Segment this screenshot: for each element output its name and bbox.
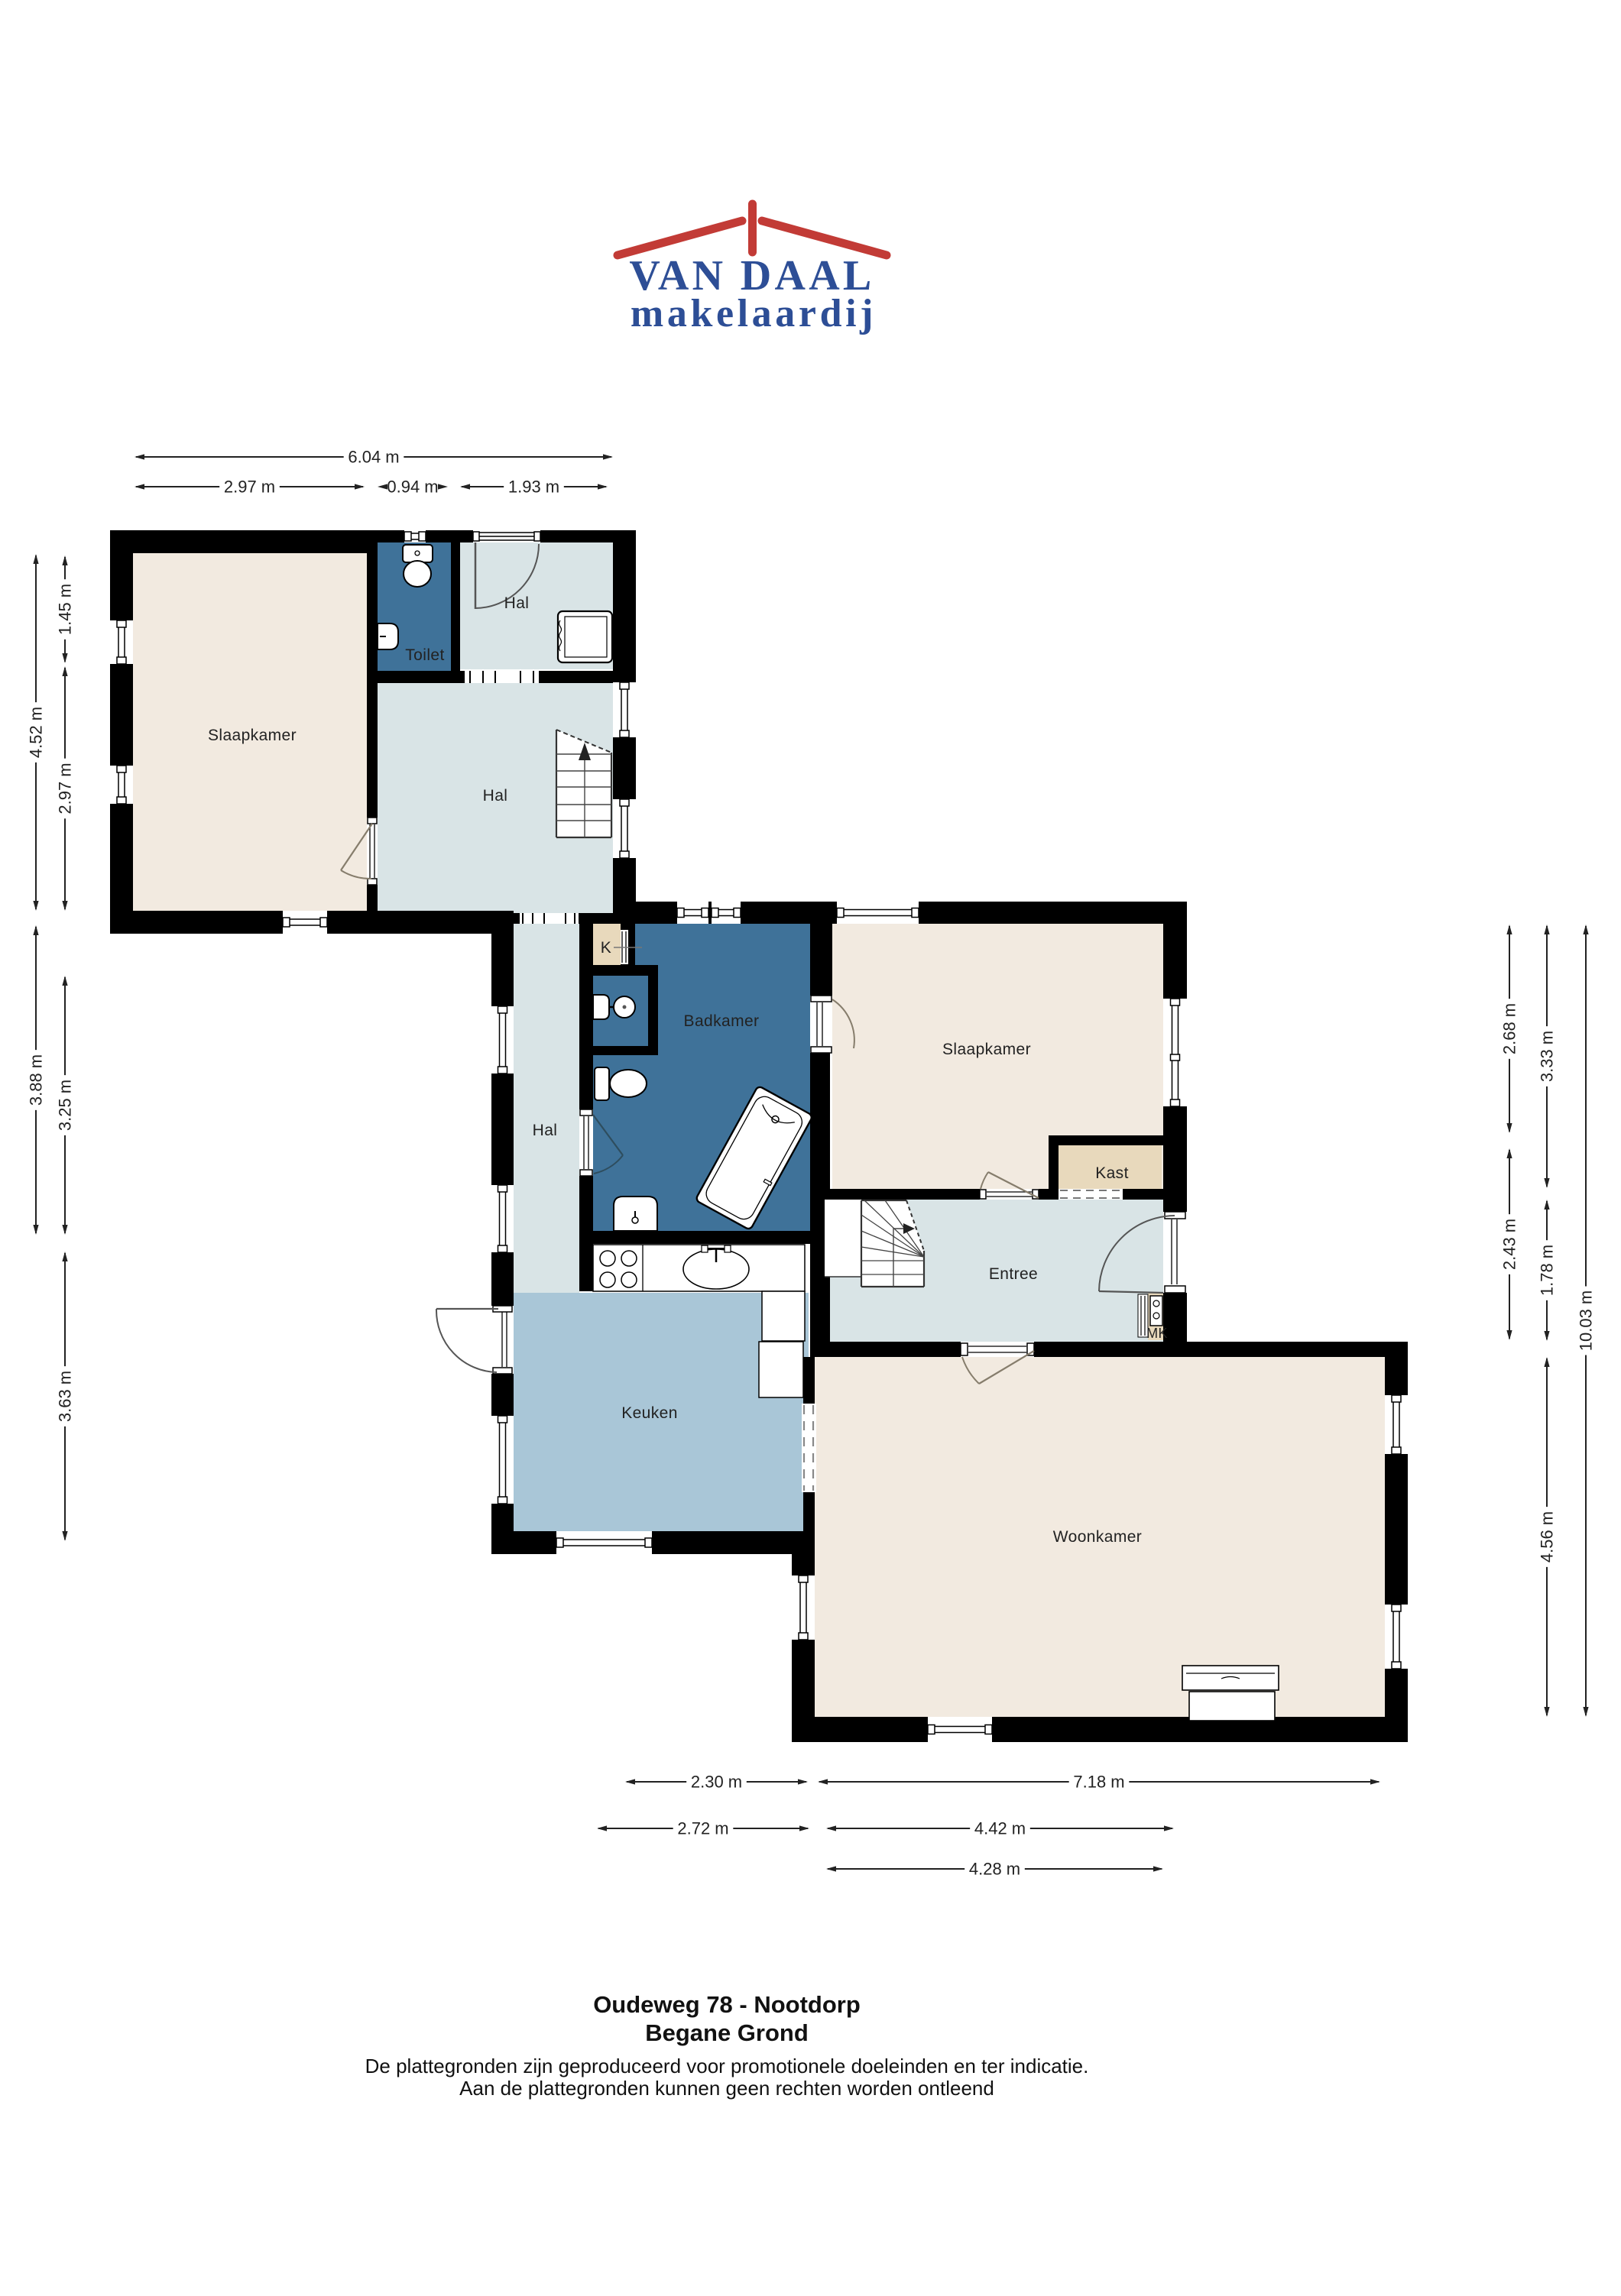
svg-text:MK: MK [1146,1326,1168,1341]
svg-text:1.45 m: 1.45 m [55,584,74,635]
svg-text:1.78 m: 1.78 m [1537,1245,1556,1296]
svg-text:0.94 m: 0.94 m [387,477,438,496]
svg-text:Slaapkamer: Slaapkamer [208,727,297,744]
svg-text:2.72 m: 2.72 m [677,1818,728,1838]
svg-text:10.03 m: 10.03 m [1576,1290,1595,1352]
svg-text:7.18 m: 7.18 m [1073,1772,1124,1791]
svg-text:3.25 m: 3.25 m [55,1080,74,1131]
svg-text:Aan de plattegronden kunnen ge: Aan de plattegronden kunnen geen rechten… [459,2077,994,2100]
svg-text:Hal: Hal [483,787,508,805]
svg-text:4.42 m: 4.42 m [974,1818,1026,1838]
svg-text:6.04 m: 6.04 m [348,447,399,466]
svg-text:1.93 m: 1.93 m [508,477,559,496]
svg-text:3.33 m: 3.33 m [1537,1031,1556,1082]
svg-text:2.30 m: 2.30 m [691,1772,742,1791]
svg-text:Hal: Hal [504,594,530,612]
svg-text:Oudeweg 78 - Nootdorp: Oudeweg 78 - Nootdorp [593,1991,861,2018]
svg-text:K: K [601,939,611,957]
svg-text:2.43 m: 2.43 m [1499,1219,1519,1270]
svg-text:Kast: Kast [1095,1164,1129,1182]
svg-text:2.97 m: 2.97 m [224,477,275,496]
svg-text:3.63 m: 3.63 m [55,1371,74,1422]
svg-text:Hal: Hal [533,1122,558,1139]
svg-text:makelaardij: makelaardij [631,292,877,335]
svg-text:De plattegronden zijn geproduc: De plattegronden zijn geproduceerd voor … [365,2055,1089,2077]
svg-text:Badkamer: Badkamer [684,1012,760,1030]
svg-text:4.28 m: 4.28 m [969,1859,1020,1878]
svg-text:Toilet: Toilet [405,646,444,664]
svg-text:Slaapkamer: Slaapkamer [942,1041,1031,1058]
svg-text:4.52 m: 4.52 m [26,707,45,758]
svg-text:Keuken: Keuken [621,1404,678,1422]
svg-text:Begane Grond: Begane Grond [645,2019,809,2046]
svg-text:3.88 m: 3.88 m [26,1054,45,1106]
svg-text:4.56 m: 4.56 m [1537,1511,1556,1563]
svg-text:Woonkamer: Woonkamer [1053,1528,1142,1546]
svg-text:2.68 m: 2.68 m [1499,1003,1519,1054]
svg-text:2.97 m: 2.97 m [55,763,74,814]
svg-text:Entree: Entree [989,1265,1038,1283]
